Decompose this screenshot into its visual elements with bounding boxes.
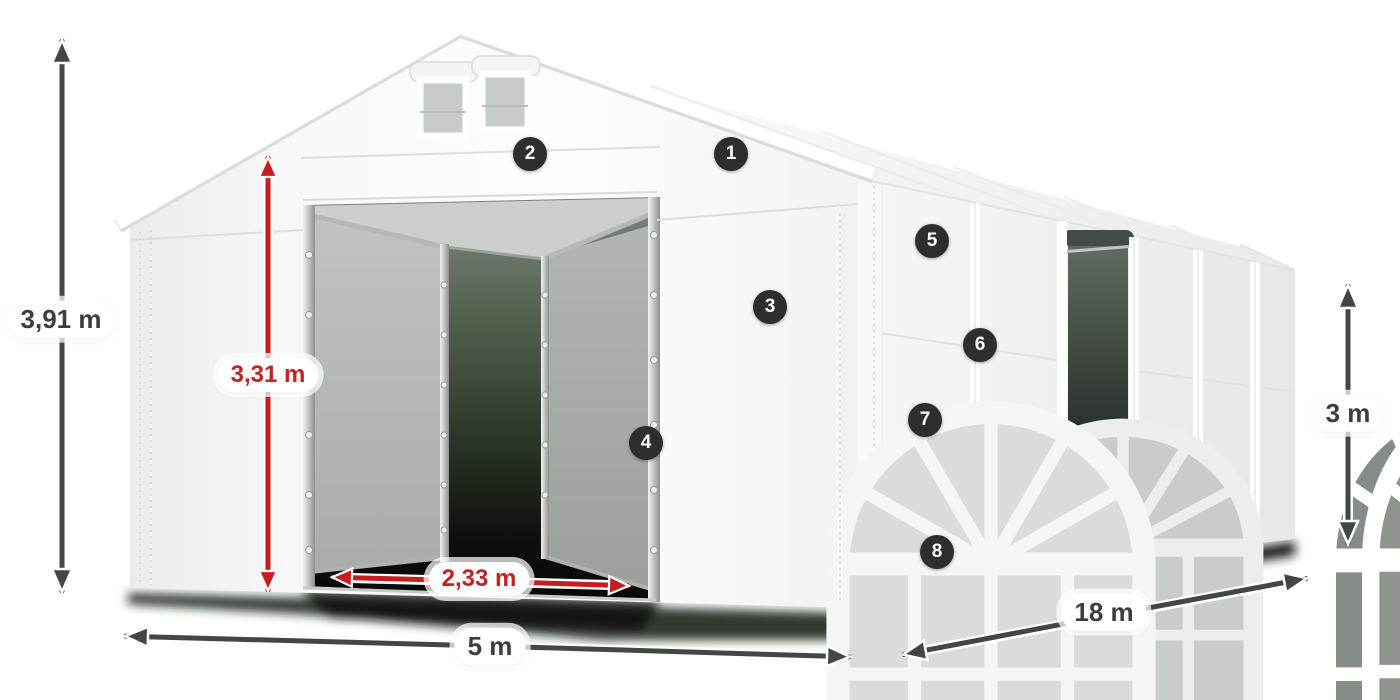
- tent-dimension-diagram: 3,91 m 3,31 m 2,33 m 5 m 18 m 3 m 1 2 3 …: [0, 0, 1400, 700]
- dimension-label-entrance-height: 3,31 m: [218, 358, 319, 392]
- dimension-label-side-height: 3 m: [1313, 395, 1384, 432]
- callout-marker-4[interactable]: 4: [629, 426, 663, 460]
- side-window: [1326, 404, 1400, 700]
- callout-marker-2[interactable]: 2: [513, 137, 547, 171]
- dimension-label-width: 5 m: [455, 628, 526, 665]
- dimension-label-total-height: 3,91 m: [8, 301, 115, 338]
- callout-marker-3[interactable]: 3: [753, 290, 787, 324]
- callout-marker-6[interactable]: 6: [963, 328, 997, 362]
- callout-marker-7[interactable]: 7: [908, 403, 942, 437]
- callout-marker-5[interactable]: 5: [915, 224, 949, 258]
- callout-marker-1[interactable]: 1: [714, 137, 748, 171]
- tent-illustration: [0, 0, 1400, 700]
- callout-marker-8[interactable]: 8: [920, 535, 954, 569]
- dimension-label-length: 18 m: [1061, 594, 1146, 631]
- dimension-label-entrance-width: 2,33 m: [429, 562, 530, 596]
